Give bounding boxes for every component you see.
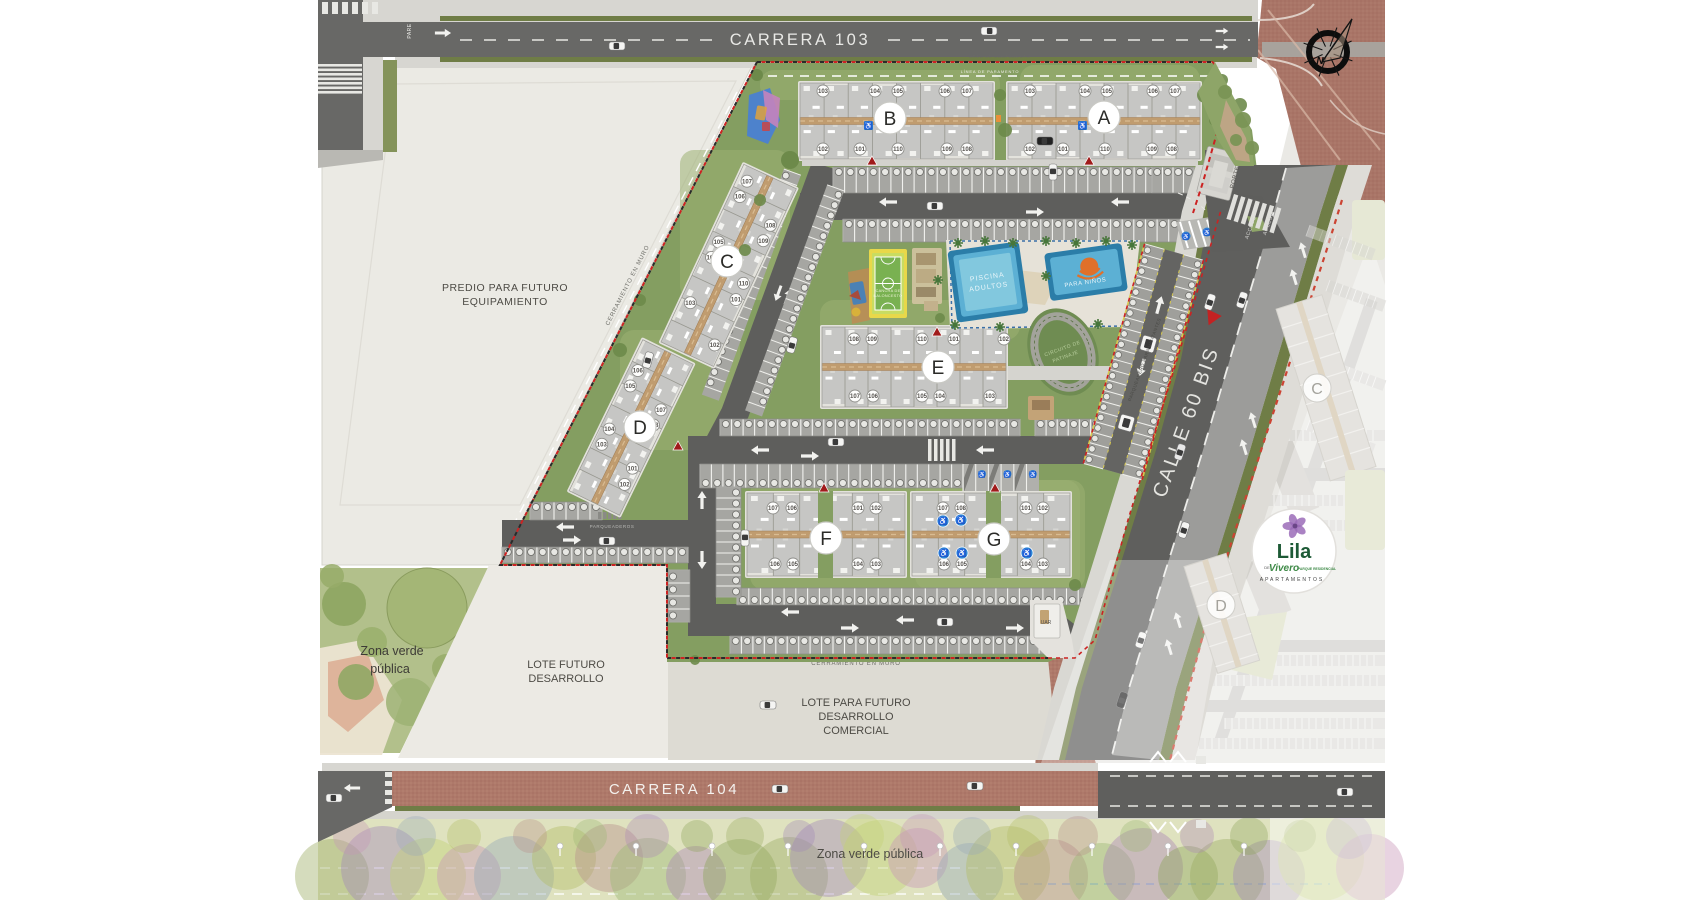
svg-text:LOTE FUTURO: LOTE FUTURO	[527, 659, 605, 671]
svg-text:104: 104	[1021, 562, 1032, 568]
svg-text:102: 102	[620, 483, 631, 489]
svg-text:Zona verde pública: Zona verde pública	[817, 847, 923, 861]
svg-text:107: 107	[850, 394, 861, 400]
svg-text:♿: ♿	[938, 517, 947, 526]
svg-text:110: 110	[893, 147, 903, 153]
svg-text:108: 108	[956, 506, 967, 512]
svg-text:N: N	[1316, 56, 1324, 67]
svg-text:♿: ♿	[1182, 233, 1190, 241]
svg-text:D: D	[1215, 598, 1227, 615]
svg-text:♿: ♿	[978, 471, 986, 479]
svg-text:LÍNEA DE PARAMENTO: LÍNEA DE PARAMENTO	[961, 69, 1020, 74]
svg-text:BALONCESTO: BALONCESTO	[874, 294, 903, 298]
svg-text:101: 101	[1058, 147, 1069, 153]
svg-text:101: 101	[853, 506, 864, 512]
svg-text:104: 104	[870, 89, 881, 95]
svg-text:B: B	[884, 109, 897, 130]
svg-text:G: G	[987, 530, 1002, 551]
svg-text:107: 107	[1170, 89, 1181, 95]
svg-text:106: 106	[633, 369, 644, 375]
svg-text:109: 109	[942, 147, 953, 153]
svg-text:102: 102	[999, 337, 1010, 343]
svg-text:109: 109	[758, 239, 769, 245]
svg-text:101: 101	[627, 466, 638, 472]
svg-text:103: 103	[818, 89, 829, 95]
svg-text:110: 110	[1100, 147, 1110, 153]
svg-text:110: 110	[917, 337, 927, 343]
svg-text:ÁREA DE CAMPAMENTO: ÁREA DE CAMPAMENTO	[969, 54, 1030, 59]
svg-text:UAR: UAR	[1041, 620, 1052, 626]
svg-text:106: 106	[940, 89, 951, 95]
svg-text:101: 101	[855, 147, 866, 153]
svg-text:108: 108	[765, 223, 776, 229]
svg-text:106: 106	[735, 195, 746, 201]
svg-text:103: 103	[985, 394, 996, 400]
svg-text:A: A	[1098, 108, 1111, 129]
svg-text:105: 105	[917, 394, 928, 400]
svg-text:♿: ♿	[957, 549, 966, 558]
svg-text:102: 102	[1025, 147, 1036, 153]
svg-text:pública: pública	[370, 662, 410, 676]
svg-text:Zona verde: Zona verde	[360, 644, 423, 658]
svg-text:♿: ♿	[1078, 121, 1087, 130]
svg-text:PARE: PARE	[407, 23, 413, 38]
svg-text:105: 105	[788, 562, 799, 568]
svg-text:APARTAMENTOS: APARTAMENTOS	[1260, 577, 1324, 583]
svg-text:110: 110	[739, 281, 749, 287]
svg-text:107: 107	[742, 179, 753, 185]
svg-text:C: C	[720, 252, 734, 273]
svg-text:106: 106	[1148, 89, 1159, 95]
svg-text:♿: ♿	[1029, 471, 1037, 479]
svg-text:104: 104	[604, 427, 615, 433]
svg-text:CARRERA 103: CARRERA 103	[730, 31, 870, 49]
svg-text:102: 102	[1038, 506, 1049, 512]
svg-text:105: 105	[893, 89, 904, 95]
svg-text:Vivero: Vivero	[1269, 563, 1299, 574]
svg-text:108: 108	[962, 147, 973, 153]
svg-text:F: F	[820, 529, 832, 550]
svg-text:PARQUEADEROS: PARQUEADEROS	[590, 524, 635, 529]
svg-text:107: 107	[768, 506, 779, 512]
svg-text:108: 108	[1167, 147, 1178, 153]
svg-text:101: 101	[949, 337, 960, 343]
svg-text:107: 107	[938, 506, 949, 512]
svg-text:108: 108	[849, 337, 860, 343]
svg-text:CANCHA DE: CANCHA DE	[876, 289, 901, 293]
svg-text:102: 102	[871, 506, 882, 512]
svg-text:♿: ♿	[1022, 549, 1031, 558]
svg-text:E: E	[932, 358, 945, 379]
svg-text:103: 103	[597, 442, 608, 448]
svg-text:107: 107	[962, 89, 973, 95]
svg-text:106: 106	[787, 506, 798, 512]
svg-text:104: 104	[853, 562, 864, 568]
svg-text:106: 106	[939, 562, 950, 568]
svg-text:103: 103	[685, 301, 696, 307]
svg-text:101: 101	[731, 298, 742, 304]
svg-text:C: C	[1311, 381, 1323, 398]
svg-text:DESARROLLO: DESARROLLO	[528, 673, 604, 685]
svg-text:104: 104	[1080, 89, 1091, 95]
svg-text:104: 104	[935, 394, 946, 400]
svg-text:PREDIO PARA FUTURO: PREDIO PARA FUTURO	[442, 282, 568, 294]
svg-text:LOTE PARA FUTURO: LOTE PARA FUTURO	[801, 697, 911, 709]
svg-text:102: 102	[710, 343, 721, 349]
svg-text:103: 103	[1025, 89, 1036, 95]
svg-text:101: 101	[1021, 506, 1032, 512]
svg-text:103: 103	[1038, 562, 1049, 568]
svg-text:109: 109	[1147, 147, 1158, 153]
svg-text:♿: ♿	[1004, 471, 1012, 479]
svg-text:D: D	[633, 418, 647, 439]
svg-text:♿: ♿	[956, 516, 965, 525]
svg-text:106: 106	[868, 394, 879, 400]
svg-text:CARRERA 104: CARRERA 104	[609, 781, 739, 798]
svg-text:EQUIPAMIENTO: EQUIPAMIENTO	[462, 296, 548, 308]
svg-text:Lila: Lila	[1277, 541, 1312, 563]
svg-text:COMERCIAL: COMERCIAL	[823, 725, 888, 737]
svg-text:105: 105	[957, 562, 968, 568]
svg-text:105: 105	[1102, 89, 1113, 95]
svg-text:105: 105	[625, 384, 636, 390]
svg-text:106: 106	[770, 562, 781, 568]
svg-text:107: 107	[656, 408, 667, 414]
svg-text:PARQUE RESIDENCIAL: PARQUE RESIDENCIAL	[1298, 567, 1336, 571]
svg-text:♿: ♿	[939, 549, 948, 558]
svg-text:103: 103	[871, 562, 882, 568]
svg-text:109: 109	[867, 337, 878, 343]
svg-text:♿: ♿	[864, 121, 873, 130]
svg-text:DESARROLLO: DESARROLLO	[818, 711, 894, 723]
svg-text:102: 102	[818, 147, 829, 153]
